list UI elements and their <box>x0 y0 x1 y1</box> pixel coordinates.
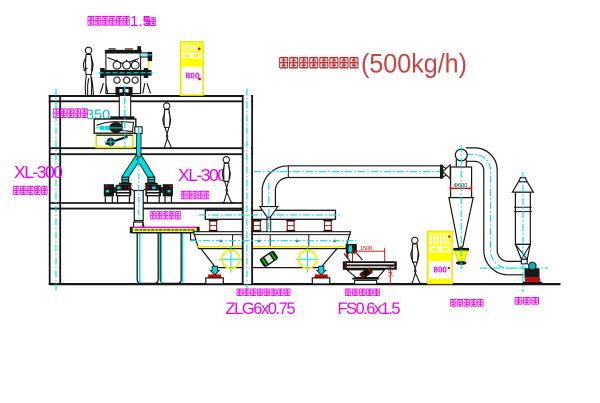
svg-text:545: 545 <box>389 268 395 277</box>
svg-text:800: 800 <box>434 266 448 275</box>
svg-text:FS0.6x1.5: FS0.6x1.5 <box>338 300 401 318</box>
svg-text:XL-300: XL-300 <box>178 165 227 185</box>
svg-text:ZLG6x0.75: ZLG6x0.75 <box>226 300 296 318</box>
svg-text:1500: 1500 <box>360 246 372 252</box>
svg-text:(500kg/h): (500kg/h) <box>361 49 467 79</box>
svg-text:800: 800 <box>186 71 200 81</box>
